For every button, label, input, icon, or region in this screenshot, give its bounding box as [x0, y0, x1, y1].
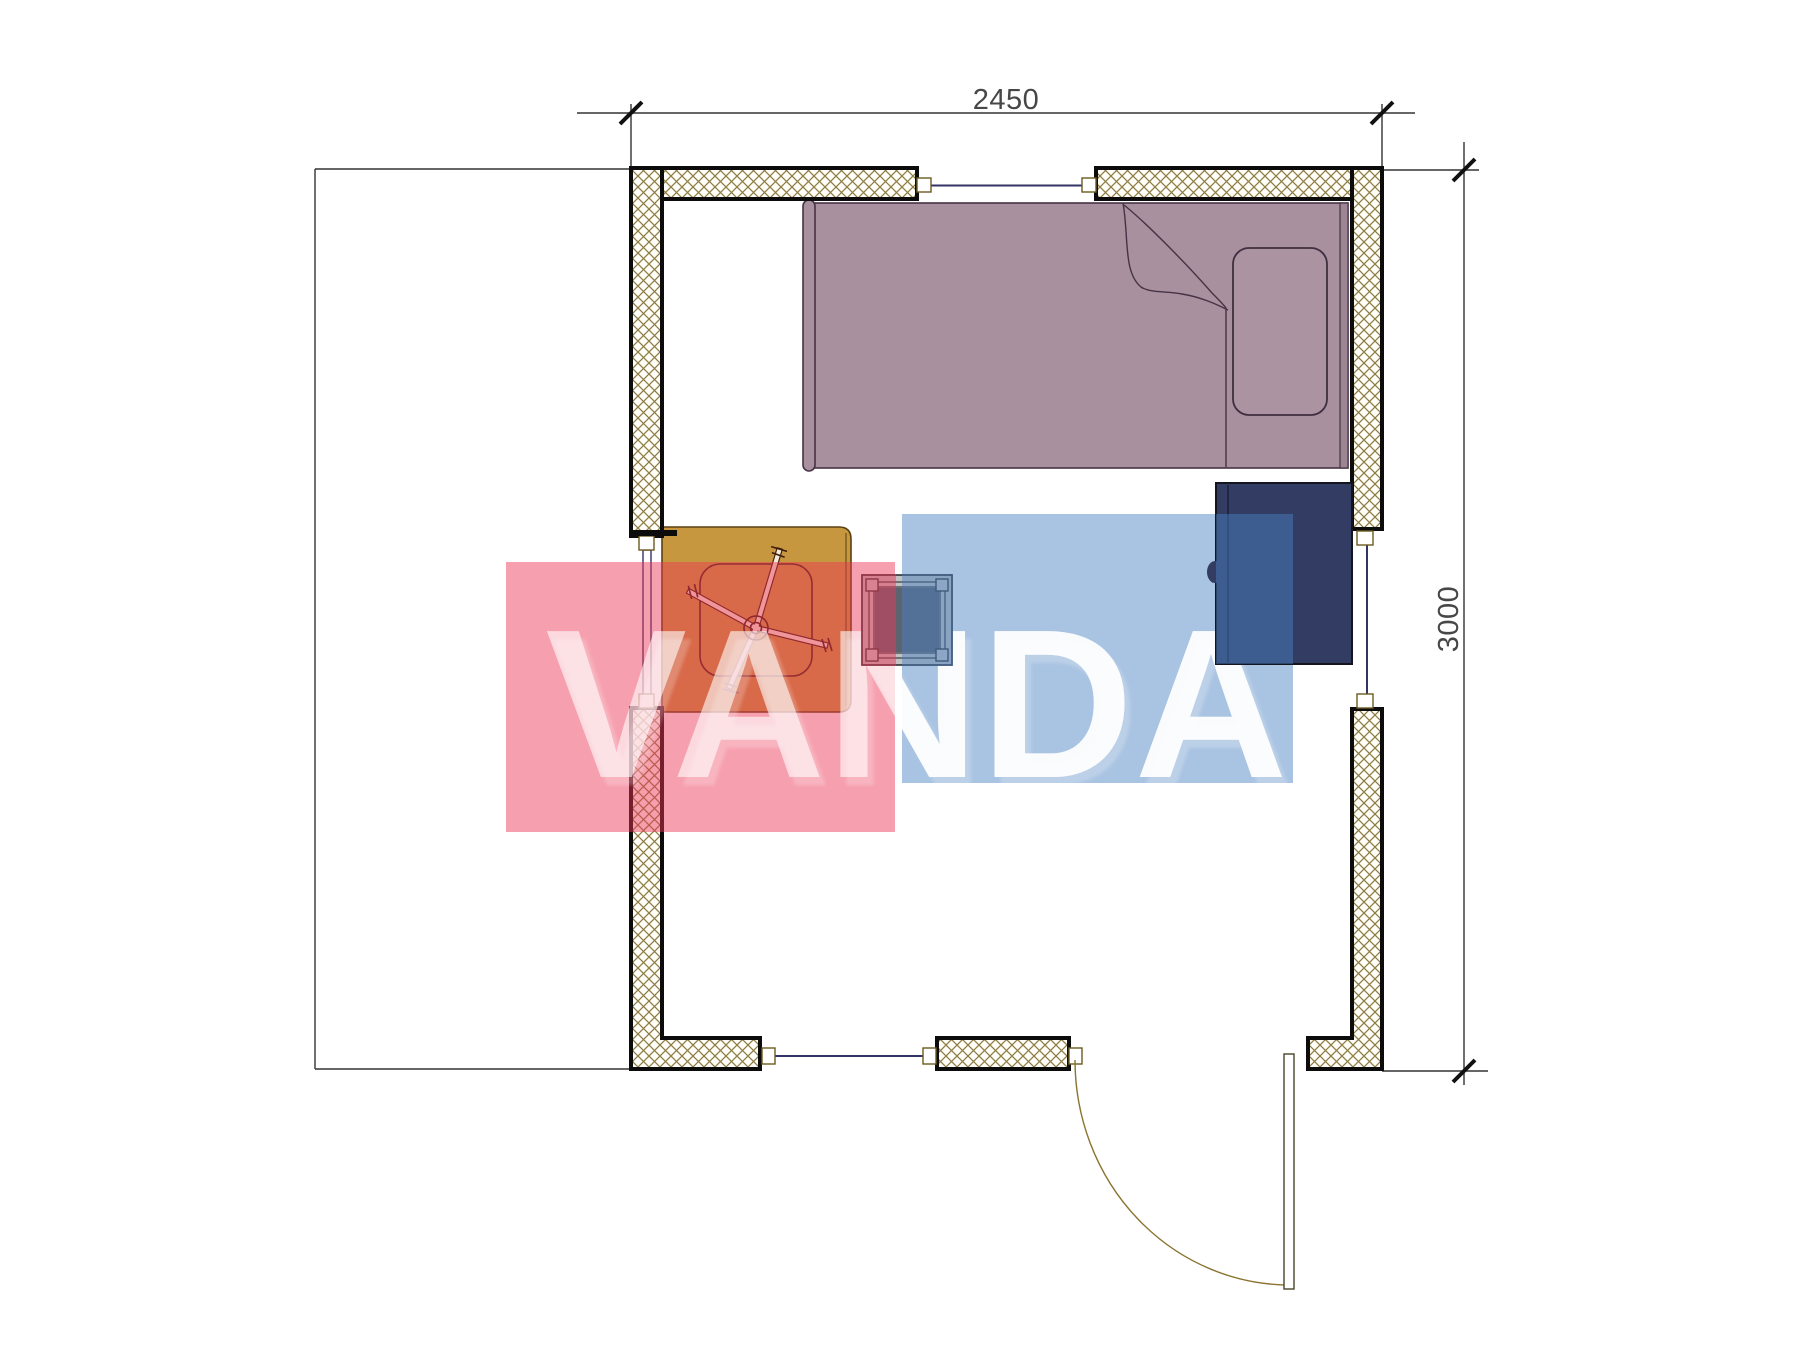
svg-text:3000: 3000 [1433, 586, 1465, 653]
svg-text:2450: 2450 [973, 84, 1040, 116]
